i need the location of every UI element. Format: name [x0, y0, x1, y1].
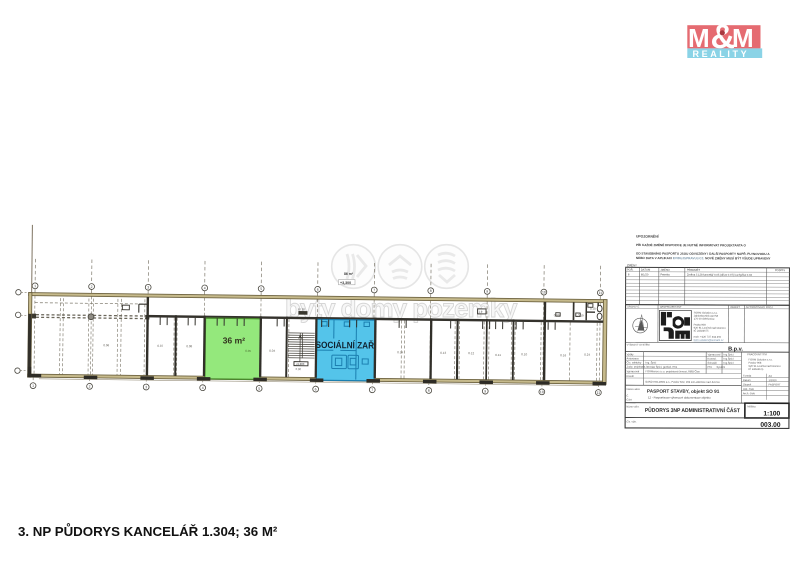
svg-text:2: 2 — [91, 285, 93, 289]
svg-text:+3,300: +3,300 — [296, 362, 305, 366]
svg-text:Změna č.128 kancelář 0.05 (dří: Změna č.128 kancelář 0.05 (dříve 0.07) k… — [687, 273, 753, 277]
svg-text:2: 2 — [89, 385, 91, 389]
svg-text:4: 4 — [202, 386, 204, 390]
svg-text:8: 8 — [428, 389, 430, 393]
svg-text:0.08: 0.08 — [186, 344, 192, 348]
svg-text:PODPIS: PODPIS — [775, 268, 785, 272]
svg-text:VÝŠKOVÝ SYSTÉM: VÝŠKOVÝ SYSTÉM — [627, 344, 650, 347]
svg-text:11: 11 — [597, 391, 601, 395]
svg-text:003.00: 003.00 — [760, 422, 781, 429]
svg-text:Čís. výkr.: Čís. výkr. — [626, 421, 637, 424]
svg-text:0.16: 0.16 — [560, 353, 566, 357]
svg-text:A4: A4 — [768, 374, 772, 378]
svg-text:4: 4 — [204, 286, 206, 290]
svg-text:12 - Pasportizace výkresové do: 12 - Pasportizace výkresové dokumentace … — [648, 395, 711, 399]
svg-text:0.24: 0.24 — [584, 353, 590, 357]
svg-text:3: 3 — [147, 286, 149, 290]
svg-text:Název výkr.: Název výkr. — [626, 406, 639, 409]
svg-text:9: 9 — [484, 389, 486, 393]
svg-text:0.19: 0.19 — [578, 313, 584, 317]
svg-text:PASPORT: PASPORT — [768, 383, 781, 387]
svg-text:AUTORIZOVANÝ PROJ.: AUTORIZOVANÝ PROJ. — [746, 306, 774, 309]
svg-text:Peterka: Peterka — [660, 273, 670, 277]
svg-text:87.30: 87.30 — [298, 307, 305, 311]
svg-text:0.04: 0.04 — [269, 349, 275, 353]
svg-text:9: 9 — [486, 290, 488, 294]
svg-text:Zodp. projektant: Zodp. projektant — [627, 365, 646, 369]
svg-text:170 00 Střešovice: 170 00 Střešovice — [694, 317, 715, 321]
svg-text:10: 10 — [540, 390, 544, 394]
svg-text:Příl.: Příl. — [708, 365, 713, 369]
svg-text:form.solution@seznam.cz: form.solution@seznam.cz — [694, 338, 725, 342]
svg-text:PASPORT STAVBY, objekt SO 91: PASPORT STAVBY, objekt SO 91 — [647, 389, 720, 394]
svg-text:10: 10 — [542, 290, 546, 294]
svg-text:Zak. číslo: Zak. číslo — [743, 387, 755, 391]
svg-text:7: 7 — [371, 388, 373, 392]
svg-text:REALITY: REALITY — [693, 49, 750, 59]
svg-text:+3,300: +3,300 — [340, 281, 351, 285]
svg-text:GENPROJEKTANT: GENPROJEKTANT — [660, 306, 682, 309]
svg-text:1/2020: 1/2020 — [768, 378, 777, 382]
svg-text:0.11: 0.11 — [495, 353, 501, 357]
svg-text:Č.: Č. — [626, 395, 629, 398]
svg-text:1: 1 — [34, 284, 36, 288]
svg-text:UPOZORNĚNÍ: UPOZORNĚNÍ — [636, 234, 660, 239]
svg-text:36 m²: 36 m² — [223, 335, 246, 345]
svg-text:Stupeň: Stupeň — [743, 382, 752, 386]
svg-text:Formát: Formát — [743, 374, 752, 378]
svg-text:BAND HOLDING a.s., Pavlov 822,: BAND HOLDING a.s., Pavlov 822, 294 24 Lu… — [645, 380, 720, 384]
svg-text:0.20: 0.20 — [554, 313, 560, 317]
svg-text:SOCIÁLNÍ ZAŘ: SOCIÁLNÍ ZAŘ — [316, 339, 375, 351]
svg-text:3: 3 — [145, 385, 147, 389]
svg-text:NEBO DATA V APLIKACI EVIDUJSPR: NEBO DATA V APLIKACI EVIDUJSPRAVUJ.CZ. N… — [636, 255, 772, 260]
svg-text:8/1/20: 8/1/20 — [641, 272, 649, 276]
svg-text:Měřítko: Měřítko — [747, 405, 756, 408]
svg-text:Schválil: Schválil — [708, 361, 717, 365]
svg-text:Část: Část — [626, 399, 631, 402]
svg-text:Kontrol.: Kontrol. — [708, 357, 717, 361]
svg-text:0.07: 0.07 — [157, 344, 163, 348]
svg-text:Vypracoval: Vypracoval — [627, 369, 640, 373]
svg-text:Kreslil: Kreslil — [626, 374, 633, 378]
svg-text:3. NP PŮDORYS KANCELÁŘ 1.304;: 3. NP PŮDORYS KANCELÁŘ 1.304; 36 M² — [18, 523, 278, 539]
svg-text:PŘI KAŽDÉ ZMĚNĚ DISPOZICE JE N: PŘI KAŽDÉ ZMĚNĚ DISPOZICE JE NUTNÉ INFOR… — [636, 242, 747, 247]
svg-text:ARCHIV Č.: ARCHIV Č. — [627, 306, 640, 309]
svg-text:ZMĚNY: ZMĚNY — [627, 262, 637, 267]
svg-text:1:100: 1:100 — [763, 410, 780, 417]
svg-text:86 m²: 86 m² — [344, 272, 354, 276]
svg-text:5: 5 — [260, 287, 262, 291]
svg-text:1: 1 — [32, 384, 34, 388]
svg-text:6: 6 — [315, 387, 317, 391]
svg-text:Arch. číslo: Arch. číslo — [743, 391, 756, 395]
svg-text:OBJEKT: OBJEKT — [730, 306, 740, 309]
svg-text:7: 7 — [373, 288, 375, 292]
svg-text:0.30: 0.30 — [296, 367, 302, 371]
svg-text:0.10: 0.10 — [521, 352, 527, 356]
svg-text:PRACOVNÍ TÝM: PRACOVNÍ TÝM — [747, 352, 767, 356]
svg-text:0.06: 0.06 — [103, 343, 109, 347]
svg-text:Datum: Datum — [743, 378, 751, 382]
svg-text:0.05: 0.05 — [245, 349, 251, 353]
svg-text:0.12: 0.12 — [468, 351, 474, 355]
svg-text:0.13: 0.13 — [440, 351, 446, 355]
svg-text:Výšky: Výšky — [627, 352, 635, 356]
svg-text:0.18: 0.18 — [590, 307, 596, 311]
svg-text:6: 6 — [317, 288, 319, 292]
svg-text:5: 5 — [258, 387, 260, 391]
svg-text:0.14: 0.14 — [397, 350, 403, 354]
svg-text:8: 8 — [430, 289, 432, 293]
svg-text:11: 11 — [599, 291, 603, 295]
svg-text:1.9: 1.9 — [478, 310, 482, 314]
svg-text:Vypracoval: Vypracoval — [708, 352, 721, 356]
svg-text:Systém: Systém — [717, 365, 726, 369]
svg-text:Název akce: Název akce — [626, 387, 640, 391]
svg-text:DATUM: DATUM — [641, 268, 651, 272]
svg-text:Autorizace: Autorizace — [627, 356, 640, 360]
